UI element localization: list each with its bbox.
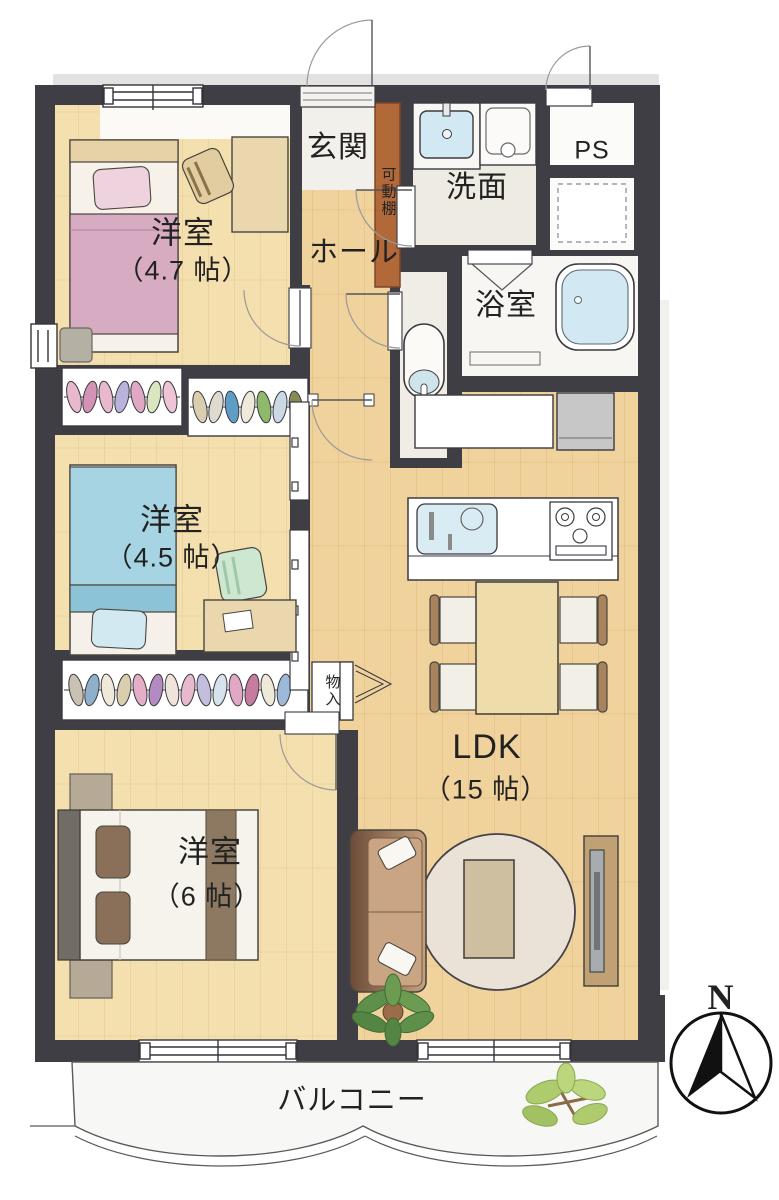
desk-icon [232, 137, 288, 232]
floorplan-page: 玄関 可動棚 洗面 PS 浴室 ホール 物入 洋室 （4.7 帖） 洋室 （4.… [0, 0, 779, 1200]
room1-sill [100, 105, 290, 139]
side-table-icon [70, 960, 112, 998]
label-room1-size: （4.7 帖） [116, 258, 249, 285]
label-room3-name: 洋室 [178, 837, 242, 868]
sofa-icon [350, 830, 426, 992]
washbasin-icon [413, 103, 480, 169]
coffee-table-icon [464, 860, 514, 958]
label-ldk-size: （15 帖） [424, 777, 549, 804]
label-ldk-name: LDK [452, 730, 521, 764]
stove-icon [550, 502, 612, 560]
closet-top-left [62, 368, 182, 426]
meter-box [558, 184, 626, 242]
label-hall: ホール [309, 239, 399, 268]
window-room1-top [103, 85, 203, 110]
label-room2-size: （4.5 帖） [105, 545, 238, 572]
side-table-icon [70, 774, 112, 812]
compass-north-icon [671, 1013, 771, 1113]
refrigerator-icon [557, 393, 614, 450]
desk-icon [204, 600, 296, 652]
label-bathroom: 浴室 [475, 291, 537, 321]
closet-middle [62, 660, 308, 720]
stool-icon [60, 328, 92, 362]
label-room1-name: 洋室 [151, 218, 215, 249]
bathtub-icon [556, 264, 634, 350]
label-balcony: バルコニー [277, 1087, 426, 1116]
label-pipe-space: PS [574, 139, 609, 164]
label-entrance: 玄関 [307, 133, 369, 163]
tv-board-icon [584, 836, 618, 986]
label-room3-size: （6 帖） [153, 884, 262, 911]
label-washroom: 洗面 [446, 173, 508, 203]
label-compass-north: N [708, 979, 735, 1015]
kitchen-sink-icon [417, 504, 497, 554]
kitchen-cupboard [415, 395, 553, 448]
label-room2-name: 洋室 [140, 505, 204, 536]
window-room1-left [31, 324, 57, 368]
label-storage: 物入 [325, 674, 340, 708]
toilet-icon [404, 324, 444, 398]
washing-machine-icon [480, 103, 536, 165]
label-movable-shelf: 可動棚 [381, 167, 396, 218]
entrance-door [300, 20, 375, 107]
